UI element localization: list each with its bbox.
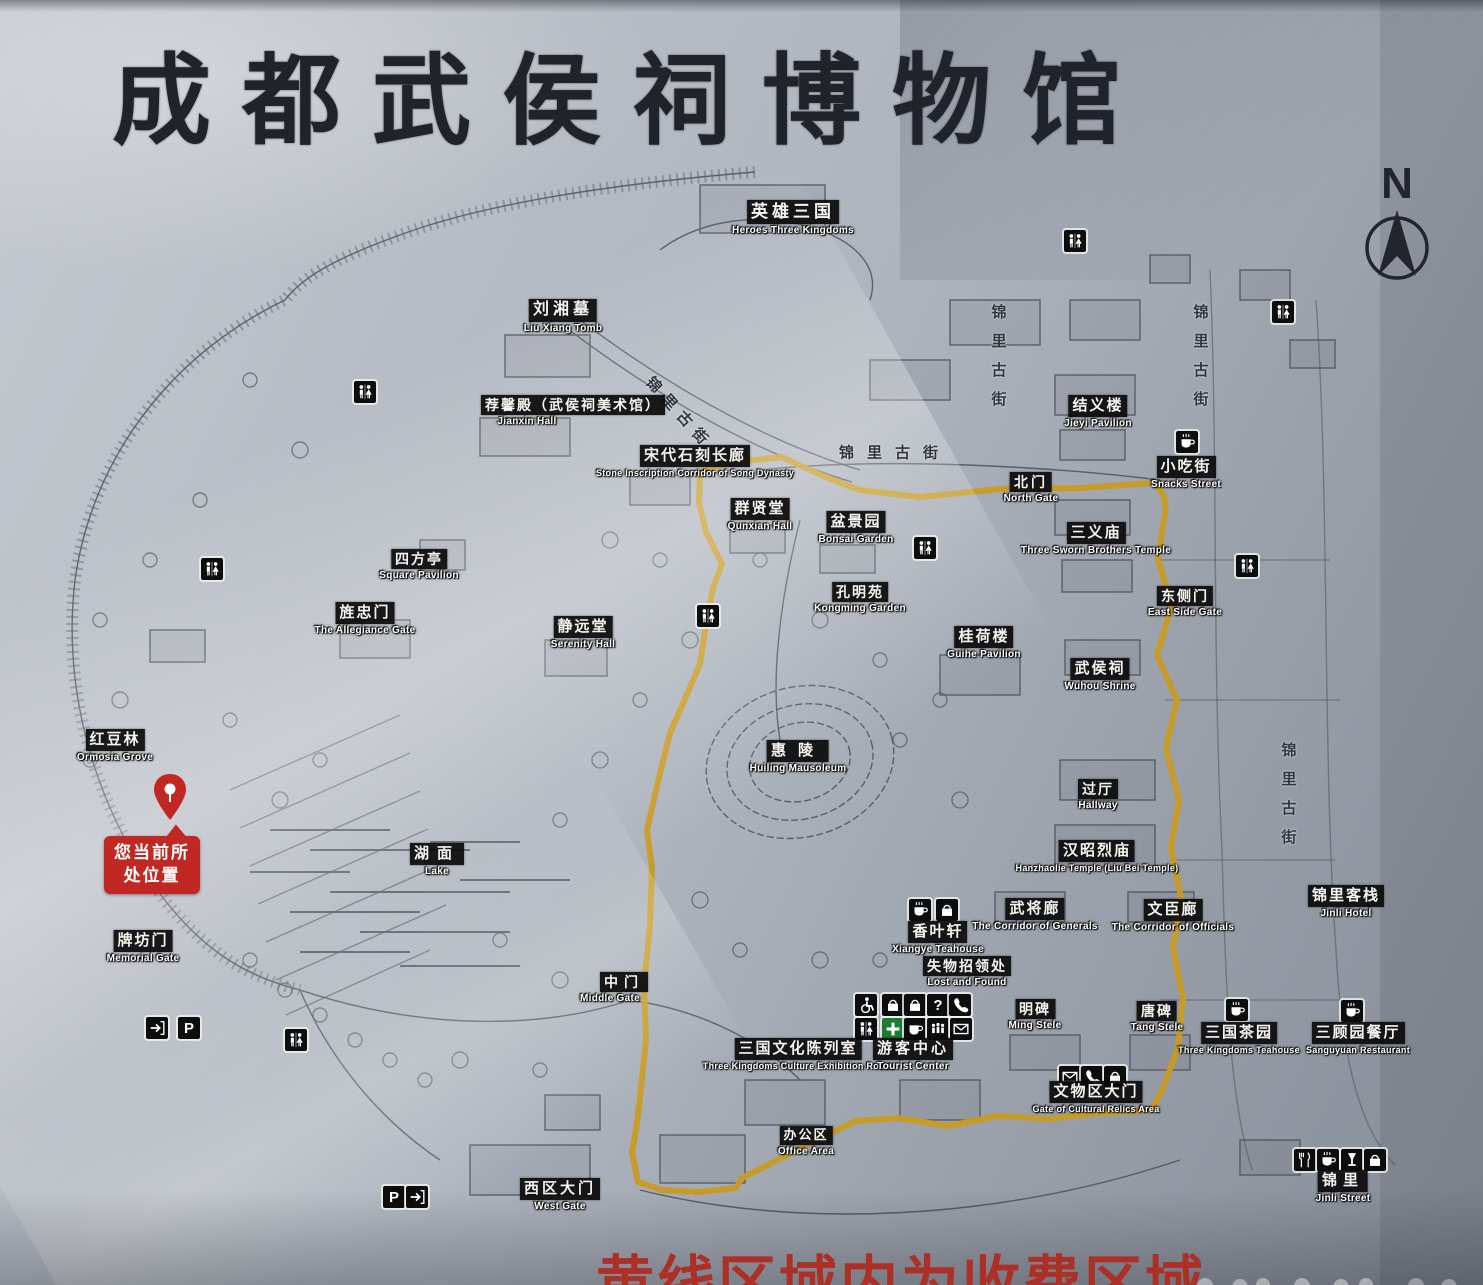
map-line-art	[0, 0, 1483, 1285]
map-label-hanzhaolie-temple: 汉昭烈庙Hanzhaolie Temple (Liu Bei Temple)	[1016, 840, 1179, 873]
map-label-cultural-relics-gate: 文物区大门Gate of Cultural Relics Area	[1032, 1081, 1159, 1114]
label-zh: 游客中心	[873, 1038, 953, 1060]
you-are-here-text-line1: 您当前所	[114, 842, 190, 865]
map-label-exhibition-room: 三国文化陈列室Three Kingdoms Culture Exhibition…	[703, 1038, 893, 1071]
map-label-lost-and-found: 失物招领处Lost and Found	[923, 956, 1011, 988]
label-en: Three Sworn Brothers Temple	[1021, 545, 1171, 556]
map-label-allegiance-gate: 旌忠门The Allegiance Gate	[315, 602, 416, 636]
label-en: Jinli Street	[1316, 1193, 1371, 1204]
label-zh: 办公区	[779, 1126, 832, 1145]
label-en: East Side Gate	[1148, 607, 1222, 618]
label-zh: 牌坊门	[113, 930, 172, 952]
map-label-huiling-mausoleum: 惠陵Huiling Mausoleum	[750, 740, 847, 774]
label-en: West Gate	[534, 1201, 585, 1212]
map-label-jianxin-hall: 荐馨殿（武侯祠美术馆）Jianxin Hall	[481, 395, 665, 427]
map-label-stone-inscription-corridor: 宋代石刻长廊Stone Inscription Corridor of Song…	[596, 445, 794, 478]
coffee-icon	[1341, 1000, 1363, 1022]
mail-icon	[950, 1018, 972, 1040]
label-zh: 锦里	[1318, 1170, 1368, 1192]
exit-icon	[146, 1017, 168, 1039]
label-en: Xiangye Teahouse	[892, 944, 984, 955]
wine-icon	[1341, 1149, 1363, 1171]
label-en: Kongming Garden	[814, 603, 906, 614]
map-label-ming-stele: 明碑Ming Stele	[1008, 999, 1061, 1031]
map-label-corridor-of-officials: 文臣廊The Corridor of Officials	[1112, 899, 1235, 933]
label-en: Ming Stele	[1008, 1020, 1061, 1031]
toilet-icon	[1064, 230, 1086, 252]
north-letter: N	[1381, 160, 1413, 208]
map-label-kongming-garden: 孔明苑Kongming Garden	[814, 582, 906, 614]
label-zh: 湖面	[410, 843, 464, 865]
map-label-hallway: 过厅Hallway	[1078, 779, 1118, 811]
label-en: Jinli Hotel	[1320, 908, 1371, 919]
label-en: Jianxin Hall	[497, 416, 556, 427]
label-en: Bonsai Garden	[818, 534, 893, 545]
label-zh: 宋代石刻长廊	[640, 445, 750, 467]
label-en: Liu Xiang Tomb	[524, 323, 602, 334]
label-en: North Gate	[1004, 493, 1059, 504]
label-zh: 武侯祠	[1070, 658, 1129, 680]
label-en: Jieyi Pavilion	[1064, 418, 1132, 429]
label-en: Tang Stele	[1131, 1022, 1184, 1033]
label-en: Ormosia Grove	[77, 752, 153, 763]
bag-icon	[882, 994, 904, 1016]
map-label-east-side-gate: 东侧门East Side Gate	[1148, 586, 1222, 618]
label-zh: 唐碑	[1137, 1001, 1177, 1021]
map-label-serenity-hall: 静远堂Serenity Hall	[551, 616, 615, 650]
label-zh: 刘湘墓	[529, 299, 597, 322]
toilet-icon	[201, 558, 223, 580]
phone-icon	[949, 994, 971, 1016]
fee-notice-text: 黄线区域内为收费区域	[596, 1236, 1206, 1285]
label-en: Three Kingdoms Culture Exhibition Room	[703, 1061, 893, 1071]
label-en: Snacks Street	[1151, 479, 1221, 490]
wheelchair-icon	[855, 994, 877, 1016]
map-label-xiangye-teahouse: 香叶轩Xiangye Teahouse	[892, 921, 984, 955]
map-label-middle-gate: 中门Middle Gate	[600, 972, 648, 1004]
label-en: Middle Gate	[580, 993, 640, 1004]
map-label-qunxian-hall: 群贤堂Qunxian Hall	[728, 498, 793, 532]
north-indicator: N	[1352, 160, 1442, 290]
label-en: Hanzhaolie Temple (Liu Bei Temple)	[1016, 863, 1179, 873]
exit-icon	[406, 1186, 428, 1208]
group-icon	[927, 1018, 949, 1040]
label-zh: 红豆林	[85, 729, 144, 751]
label-zh: 小吃街	[1156, 456, 1215, 478]
map-label-square-pavilion: 四方亭Square Pavilion	[379, 549, 459, 581]
map-label-guihe-pavilion: 桂荷楼Guihe Pavilion	[947, 626, 1021, 660]
map-label-tourist-center: 游客中心Tourist Center	[873, 1038, 953, 1072]
label-zh: 三顾园餐厅	[1311, 1022, 1404, 1044]
label-en: Wuhou Shrine	[1064, 681, 1135, 692]
label-en: The Corridor of Officials	[1112, 922, 1235, 933]
label-zh: 三国茶园	[1201, 1022, 1277, 1044]
map-label-jinli-hotel: 锦里客栈Jinli Hotel	[1308, 885, 1384, 919]
label-en: Huiling Mausoleum	[750, 763, 847, 774]
label-zh: 过厅	[1078, 779, 1118, 799]
coffee-icon	[909, 899, 931, 921]
label-en: Tourist Center	[877, 1061, 949, 1072]
location-pin-icon	[152, 772, 188, 824]
map-title: 成都武侯祠博物馆	[112, 20, 1202, 164]
label-zh: 盆景园	[826, 511, 885, 533]
park-map-sign-photo: 成都武侯祠博物馆 N 锦里古街锦里古街锦里古街锦里古街锦里古街 ?PP 英雄三国…	[0, 0, 1483, 1285]
bag-icon	[1364, 1149, 1386, 1171]
toilet-icon	[1236, 555, 1258, 577]
bag-icon	[904, 994, 926, 1016]
label-zh: 孔明苑	[832, 582, 888, 602]
cropped-text-fragment	[1197, 1278, 1457, 1285]
label-en: Lake	[425, 866, 449, 877]
map-label-corridor-of-generals: 武将廊The Corridor of Generals	[972, 898, 1098, 932]
toilet-icon	[914, 537, 936, 559]
label-zh: 锦里客栈	[1308, 885, 1384, 907]
label-en: Stone Inscription Corridor of Song Dynas…	[596, 468, 794, 478]
label-en: Square Pavilion	[379, 570, 459, 581]
label-en: Memorial Gate	[107, 953, 180, 964]
label-en: Three Kingdoms Teahouse	[1178, 1045, 1300, 1055]
coffee-icon	[1176, 431, 1198, 453]
map-label-wuhou-shrine: 武侯祠Wuhou Shrine	[1064, 658, 1135, 692]
label-zh: 明碑	[1015, 999, 1055, 1019]
map-label-north-gate: 北门North Gate	[1004, 472, 1059, 504]
label-en: Office Area	[778, 1146, 834, 1157]
map-label-lake: 湖面Lake	[410, 843, 464, 877]
label-en: Gate of Cultural Relics Area	[1032, 1104, 1159, 1114]
map-label-bonsai-garden: 盆景园Bonsai Garden	[818, 511, 893, 545]
label-en: Guihe Pavilion	[947, 649, 1021, 660]
label-zh: 惠陵	[767, 740, 829, 762]
cup-icon	[904, 1018, 926, 1040]
label-zh: 桂荷楼	[954, 626, 1013, 648]
label-en: The Allegiance Gate	[315, 625, 416, 636]
map-label-ormosia-grove: 红豆林Ormosia Grove	[77, 729, 153, 763]
label-zh: 三义庙	[1066, 522, 1125, 544]
firstaid-icon	[882, 1018, 904, 1040]
street-name-3: 锦里古街	[1190, 304, 1211, 420]
label-zh: 西区大门	[520, 1178, 600, 1200]
fork-icon	[1294, 1149, 1316, 1171]
label-en: Qunxian Hall	[728, 521, 793, 532]
toilet-icon	[697, 605, 719, 627]
coffee-icon	[1226, 999, 1248, 1021]
label-en: Lost and Found	[927, 977, 1006, 988]
label-zh: 香叶轩	[908, 921, 967, 943]
label-zh: 群贤堂	[730, 498, 789, 520]
toilet-icon	[354, 381, 376, 403]
toilet-icon	[855, 1018, 877, 1040]
map-label-heroes-three-kingdoms: 英雄三国Heroes Three Kingdoms	[732, 200, 854, 236]
you-are-here-text-line2: 处位置	[124, 865, 181, 888]
label-zh: 静远堂	[553, 616, 612, 638]
street-name-4: 锦里古街	[1278, 742, 1299, 858]
label-zh: 旌忠门	[335, 602, 394, 624]
label-zh: 失物招领处	[923, 956, 1011, 976]
bag-icon	[936, 899, 958, 921]
map-label-jieyi-pavilion: 结义楼Jieyi Pavilion	[1064, 395, 1132, 429]
label-zh: 文物区大门	[1049, 1081, 1142, 1103]
label-en: Sanguyuan Restaurant	[1306, 1045, 1410, 1055]
map-label-memorial-gate: 牌坊门Memorial Gate	[107, 930, 180, 964]
label-zh: 东侧门	[1157, 586, 1213, 606]
map-label-snacks-street: 小吃街Snacks Street	[1151, 456, 1221, 490]
label-zh: 三国文化陈列室	[734, 1038, 861, 1060]
map-label-jinli-street: 锦里Jinli Street	[1316, 1170, 1371, 1204]
coffee-icon	[1317, 1149, 1339, 1171]
label-en: Hallway	[1078, 800, 1117, 811]
label-en: The Corridor of Generals	[972, 921, 1098, 932]
label-en: Heroes Three Kingdoms	[732, 225, 854, 236]
parking-icon: P	[383, 1186, 405, 1208]
you-are-here-bubble: 您当前所 处位置	[104, 836, 200, 894]
label-zh: 中门	[600, 972, 648, 992]
label-zh: 英雄三国	[747, 200, 839, 224]
street-name-2: 锦里古街	[988, 304, 1009, 420]
label-zh: 文臣廊	[1143, 899, 1202, 921]
map-label-office-area: 办公区Office Area	[778, 1126, 834, 1157]
label-en: Serenity Hall	[551, 639, 615, 650]
label-zh: 四方亭	[391, 549, 447, 569]
map-label-sanguyuan-restaurant: 三顾园餐厅Sanguyuan Restaurant	[1306, 1022, 1410, 1055]
label-zh: 汉昭烈庙	[1059, 840, 1135, 862]
map-label-liu-xiang-tomb: 刘湘墓Liu Xiang Tomb	[524, 299, 602, 334]
map-label-west-gate: 西区大门West Gate	[520, 1178, 600, 1212]
question-icon: ?	[927, 994, 949, 1016]
north-arrow-icon	[1367, 210, 1427, 278]
toilet-icon	[1272, 301, 1294, 323]
map-label-tang-stele: 唐碑Tang Stele	[1131, 1001, 1184, 1033]
label-zh: 荐馨殿（武侯祠美术馆）	[481, 395, 665, 415]
map-label-three-sworn-brothers-temple: 三义庙Three Sworn Brothers Temple	[1021, 522, 1171, 556]
label-zh: 北门	[1010, 472, 1052, 492]
label-zh: 武将廊	[1005, 898, 1064, 920]
street-name-1: 锦里古街	[839, 442, 951, 463]
toilet-icon	[285, 1029, 307, 1051]
label-zh: 结义楼	[1068, 395, 1127, 417]
map-label-three-kingdoms-teahouse: 三国茶园Three Kingdoms Teahouse	[1178, 1022, 1300, 1055]
parking-icon: P	[178, 1017, 200, 1039]
